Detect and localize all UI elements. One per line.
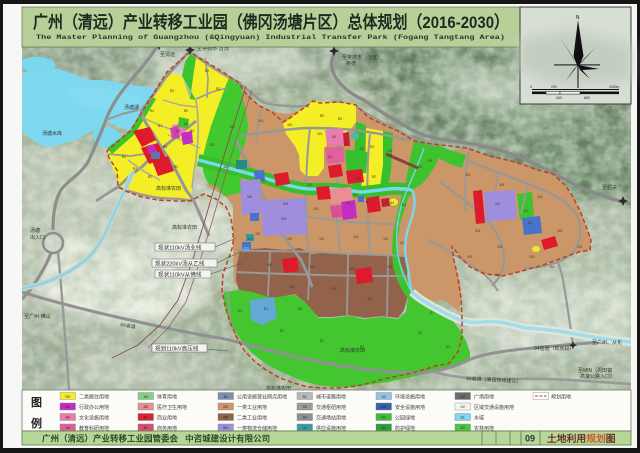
svg-text:M1: M1 bbox=[496, 273, 501, 277]
svg-text:W1: W1 bbox=[281, 217, 286, 221]
svg-text:M1: M1 bbox=[284, 202, 289, 206]
svg-text:高速公路入口）: 高速公路入口） bbox=[580, 373, 615, 380]
svg-text:M1: M1 bbox=[500, 183, 505, 187]
svg-text:W1: W1 bbox=[223, 426, 228, 430]
svg-text:B1: B1 bbox=[366, 200, 370, 204]
svg-text:E1: E1 bbox=[430, 311, 434, 315]
svg-text:B4: B4 bbox=[224, 395, 228, 399]
svg-text:G2: G2 bbox=[418, 165, 423, 169]
svg-text:A3: A3 bbox=[66, 426, 70, 430]
svg-text:文化设施用地: 文化设施用地 bbox=[79, 415, 109, 422]
svg-text:G2: G2 bbox=[400, 241, 405, 245]
svg-text:M2: M2 bbox=[530, 255, 535, 259]
svg-text:行政办公用地: 行政办公用地 bbox=[79, 404, 109, 411]
svg-text:09: 09 bbox=[525, 434, 535, 444]
svg-text:M1: M1 bbox=[578, 245, 583, 249]
svg-text:M1: M1 bbox=[466, 173, 471, 177]
svg-text:R2: R2 bbox=[190, 129, 195, 133]
svg-text:M1: M1 bbox=[259, 119, 264, 123]
svg-text:R2: R2 bbox=[320, 114, 325, 118]
svg-text:S4: S4 bbox=[303, 416, 307, 420]
svg-text:土地利用规划图: 土地利用规划图 bbox=[547, 432, 616, 445]
svg-text:M1: M1 bbox=[314, 207, 319, 211]
svg-text:M1: M1 bbox=[354, 235, 359, 239]
svg-text:高标准农田: 高标准农田 bbox=[156, 185, 181, 192]
svg-text:M1: M1 bbox=[538, 195, 543, 199]
svg-text:M2: M2 bbox=[350, 267, 355, 271]
svg-text:E1: E1 bbox=[354, 193, 358, 197]
svg-text:M1: M1 bbox=[223, 405, 228, 409]
svg-text:W1: W1 bbox=[247, 195, 252, 199]
svg-text:A4: A4 bbox=[184, 122, 188, 126]
svg-text:B2: B2 bbox=[144, 426, 148, 430]
svg-text:M2: M2 bbox=[268, 263, 273, 267]
svg-text:M2: M2 bbox=[223, 416, 228, 420]
svg-text:广州（清远）产业转移工业园（佛冈汤塘片区）总体规划（2016: 广州（清远）产业转移工业园（佛冈汤塘片区）总体规划（2016-2030） bbox=[33, 12, 509, 32]
svg-text:交通场站用地: 交通场站用地 bbox=[316, 415, 346, 422]
svg-text:R2: R2 bbox=[205, 69, 210, 73]
svg-text:M2: M2 bbox=[298, 307, 303, 311]
svg-text:M2: M2 bbox=[332, 287, 337, 291]
svg-text:G2: G2 bbox=[210, 143, 215, 147]
svg-text:A4: A4 bbox=[390, 201, 394, 205]
svg-text:W1: W1 bbox=[495, 202, 500, 206]
svg-text:R2: R2 bbox=[148, 175, 153, 179]
svg-text:E2: E2 bbox=[320, 339, 324, 343]
svg-text:图: 图 bbox=[31, 396, 42, 409]
svg-text:G2: G2 bbox=[524, 209, 529, 213]
svg-text:一类工业用地: 一类工业用地 bbox=[237, 404, 267, 411]
svg-text:商业用地: 商业用地 bbox=[157, 415, 177, 422]
svg-text:200: 200 bbox=[551, 85, 557, 89]
svg-text:A2: A2 bbox=[66, 416, 70, 420]
svg-text:城市道路用地: 城市道路用地 bbox=[316, 394, 346, 401]
svg-text:G3: G3 bbox=[460, 395, 465, 399]
svg-text:E2: E2 bbox=[280, 329, 284, 333]
svg-text:区域交通设施用地: 区域交通设施用地 bbox=[474, 404, 514, 411]
svg-text:E2: E2 bbox=[238, 309, 242, 313]
svg-text:E1: E1 bbox=[262, 179, 266, 183]
svg-text:至英德市（浛洸）: 至英德市（浛洸） bbox=[342, 54, 382, 61]
svg-text:M2: M2 bbox=[368, 297, 373, 301]
svg-text:A5: A5 bbox=[144, 405, 148, 409]
svg-text:M2: M2 bbox=[550, 265, 555, 269]
svg-text:公园绿地: 公园绿地 bbox=[395, 415, 415, 422]
svg-text:M2: M2 bbox=[310, 265, 315, 269]
svg-text:R2: R2 bbox=[338, 117, 343, 121]
svg-text:G2: G2 bbox=[224, 165, 229, 169]
svg-text:交通枢纽用地: 交通枢纽用地 bbox=[316, 404, 346, 411]
svg-text:M2: M2 bbox=[290, 285, 295, 289]
svg-text:R2: R2 bbox=[150, 109, 155, 113]
svg-text:H2: H2 bbox=[461, 405, 465, 409]
svg-text:至清远: 至清远 bbox=[160, 51, 175, 58]
svg-text:M1: M1 bbox=[476, 229, 481, 233]
svg-text:水域: 水域 bbox=[474, 415, 484, 422]
svg-text:R2: R2 bbox=[356, 177, 361, 181]
svg-text:R2: R2 bbox=[216, 87, 221, 91]
svg-text:医疗卫生用地: 医疗卫生用地 bbox=[157, 404, 187, 411]
svg-text:M1: M1 bbox=[498, 245, 503, 249]
svg-text:E2: E2 bbox=[418, 331, 422, 335]
svg-text:N: N bbox=[576, 15, 580, 21]
svg-text:R2: R2 bbox=[372, 175, 377, 179]
svg-text:M2: M2 bbox=[388, 265, 393, 269]
svg-text:A3: A3 bbox=[328, 155, 332, 159]
svg-text:M1: M1 bbox=[288, 237, 293, 241]
svg-text:现状220kV汤从乙线: 现状220kV汤从乙线 bbox=[155, 260, 205, 268]
svg-text:出入口: 出入口 bbox=[30, 234, 45, 241]
svg-text:至韶关: 至韶关 bbox=[602, 184, 617, 191]
svg-text:1000m: 1000m bbox=[609, 85, 620, 89]
svg-text:E2: E2 bbox=[461, 426, 465, 430]
svg-text:G1: G1 bbox=[381, 416, 386, 420]
svg-text:体育用地: 体育用地 bbox=[157, 394, 177, 401]
svg-text:安全设施用地: 安全设施用地 bbox=[395, 404, 425, 411]
svg-text:例: 例 bbox=[31, 416, 42, 430]
svg-text:G2: G2 bbox=[360, 147, 365, 151]
svg-text:现状110kV从佛线: 现状110kV从佛线 bbox=[158, 271, 202, 279]
svg-text:94省道（现状段）: 94省道（现状段） bbox=[534, 345, 575, 352]
svg-text:R2: R2 bbox=[163, 145, 168, 149]
svg-text:G2: G2 bbox=[388, 153, 393, 157]
svg-text:A3: A3 bbox=[332, 135, 336, 139]
svg-text:R2: R2 bbox=[66, 395, 70, 399]
svg-text:S1: S1 bbox=[303, 395, 307, 399]
svg-text:B1: B1 bbox=[144, 416, 148, 420]
svg-text:E1: E1 bbox=[308, 183, 312, 187]
svg-text:The Master Planning of Guangzh: The Master Planning of Guangzhou (&Qingy… bbox=[36, 34, 505, 41]
svg-text:公用设施营业网点用地: 公用设施营业网点用地 bbox=[237, 394, 287, 401]
svg-text:R2: R2 bbox=[174, 165, 179, 169]
svg-text:A4: A4 bbox=[144, 395, 148, 399]
svg-text:M1: M1 bbox=[320, 237, 325, 241]
svg-text:S3: S3 bbox=[303, 405, 307, 409]
svg-text:高标准农田: 高标准农田 bbox=[172, 224, 197, 231]
svg-text:G2: G2 bbox=[381, 426, 386, 430]
svg-text:至MIN（周田镇: 至MIN（周田镇 bbox=[578, 367, 612, 374]
svg-text:广州（清远）产业转移工业园管委会 中咨城建设计有限公司: 广州（清远）产业转移工业园管委会 中咨城建设计有限公司 bbox=[42, 434, 270, 444]
svg-text:B1: B1 bbox=[158, 124, 162, 128]
svg-text:U1: U1 bbox=[303, 426, 307, 430]
svg-text:U2: U2 bbox=[382, 395, 386, 399]
svg-text:规划用地: 规划用地 bbox=[551, 394, 571, 401]
svg-text:G2: G2 bbox=[230, 125, 235, 129]
svg-text:0: 0 bbox=[530, 85, 532, 89]
svg-text:环境设施用地: 环境设施用地 bbox=[395, 394, 425, 401]
svg-text:M1: M1 bbox=[288, 123, 293, 127]
svg-text:U3: U3 bbox=[528, 221, 533, 225]
svg-text:E2: E2 bbox=[446, 345, 450, 349]
svg-text:M1: M1 bbox=[468, 255, 473, 259]
svg-text:A1: A1 bbox=[66, 405, 70, 409]
svg-text:600: 600 bbox=[584, 96, 590, 100]
svg-text:M1: M1 bbox=[384, 237, 389, 241]
svg-text:M2: M2 bbox=[558, 229, 563, 233]
svg-text:E1: E1 bbox=[264, 307, 268, 311]
svg-text:M1: M1 bbox=[318, 132, 323, 136]
svg-text:二类居住用地: 二类居住用地 bbox=[79, 394, 109, 401]
svg-text:汤塘湖: 汤塘湖 bbox=[124, 104, 139, 111]
svg-text:R2: R2 bbox=[370, 145, 375, 149]
svg-text:英德: 英德 bbox=[346, 60, 356, 67]
svg-text:至广州、从化: 至广州、从化 bbox=[592, 339, 622, 346]
svg-text:规划110kV高压线: 规划110kV高压线 bbox=[155, 345, 199, 353]
svg-text:至广州·佛山: 至广州·佛山 bbox=[24, 313, 51, 320]
svg-text:R2: R2 bbox=[133, 167, 138, 171]
svg-text:R2: R2 bbox=[122, 155, 127, 159]
svg-text:A3: A3 bbox=[176, 129, 180, 133]
svg-text:E1: E1 bbox=[402, 203, 406, 207]
svg-text:A1: A1 bbox=[346, 201, 350, 205]
svg-text:M1: M1 bbox=[256, 232, 261, 236]
svg-text:二类工业用地: 二类工业用地 bbox=[237, 415, 267, 422]
svg-text:汤塘水库: 汤塘水库 bbox=[42, 130, 62, 137]
svg-text:现状110kV汤业线: 现状110kV汤业线 bbox=[158, 244, 202, 252]
svg-text:汤塘: 汤塘 bbox=[30, 227, 40, 234]
svg-text:M1: M1 bbox=[428, 159, 433, 163]
svg-text:R2: R2 bbox=[170, 89, 175, 93]
svg-text:U1: U1 bbox=[248, 237, 253, 241]
svg-text:E1: E1 bbox=[461, 416, 465, 420]
svg-text:U3: U3 bbox=[382, 405, 386, 409]
svg-text:400: 400 bbox=[556, 96, 562, 100]
svg-text:E2: E2 bbox=[360, 345, 364, 349]
svg-text:广场用地: 广场用地 bbox=[474, 394, 494, 401]
svg-text:R2: R2 bbox=[184, 109, 189, 113]
